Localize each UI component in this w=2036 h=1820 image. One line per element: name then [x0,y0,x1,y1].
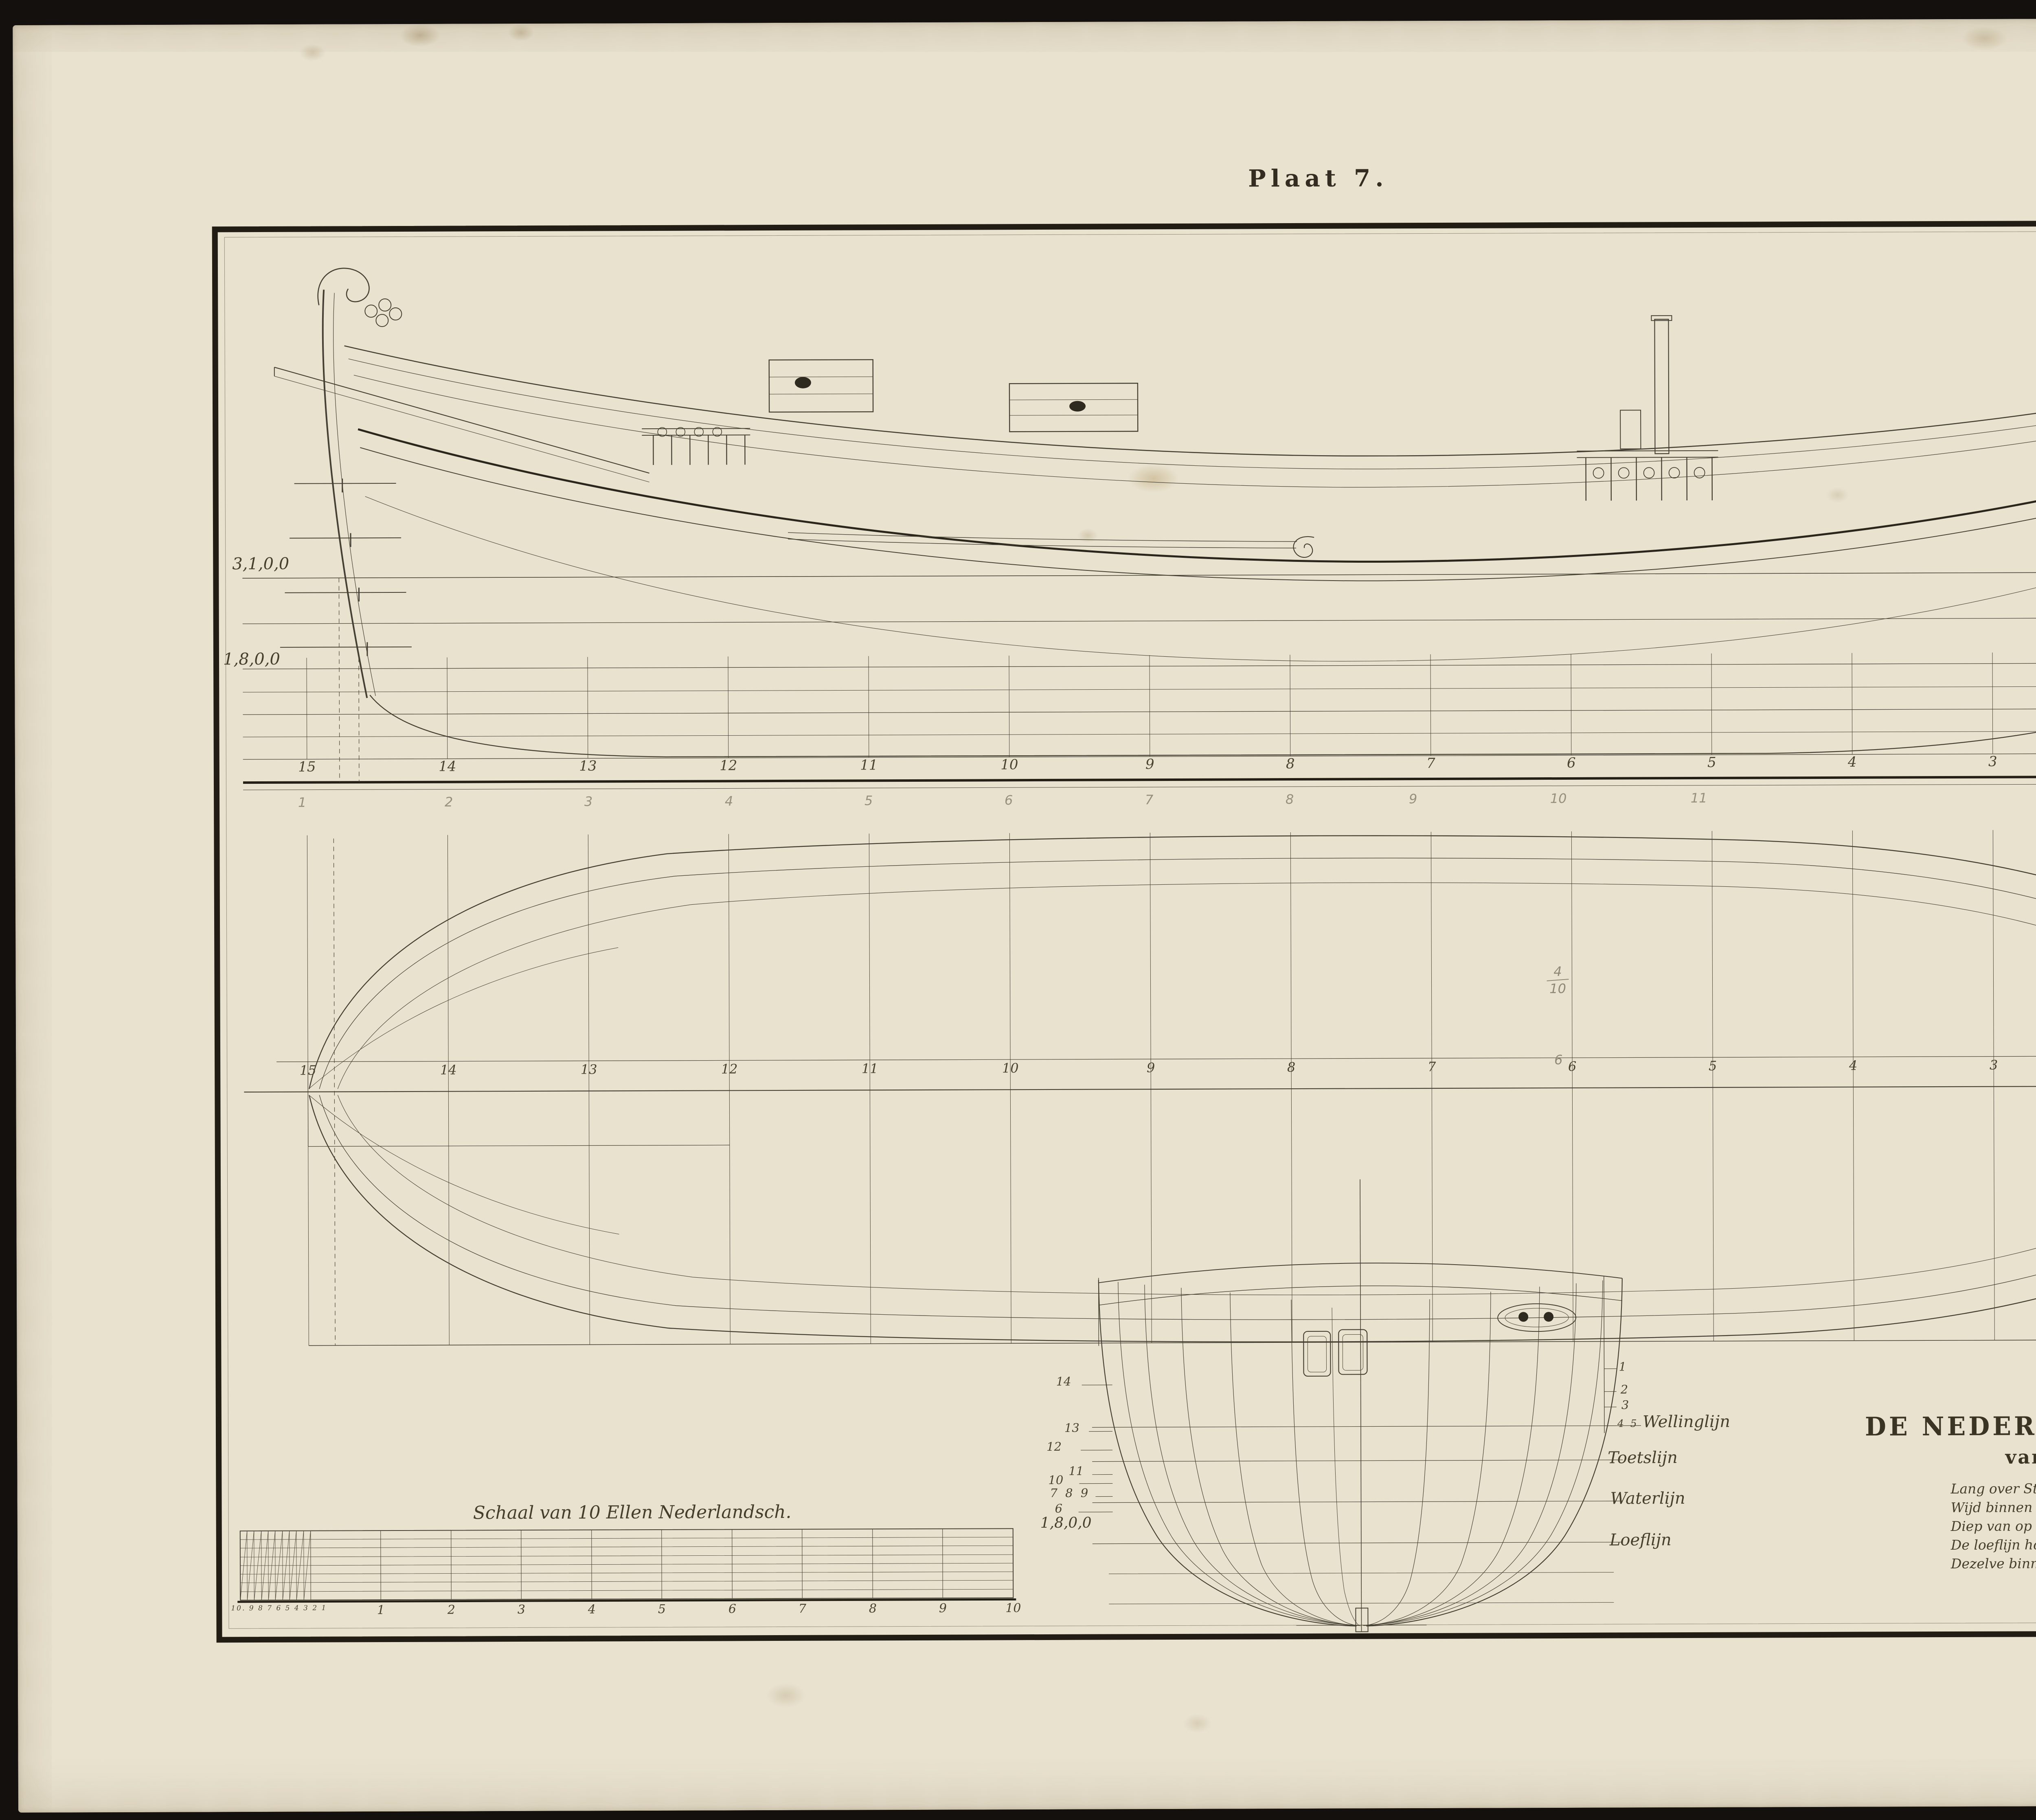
half-breadth-station-number: 15 [300,1063,316,1078]
half-breadth-station-number: 4 [1849,1058,1857,1073]
scale-major-number: 2 [448,1603,455,1617]
title-block-subtitle: van 120 Last. [1841,1445,2036,1469]
paper-sheet: Plaat 7. [13,17,2036,1813]
half-breadth-station-number: 5 [1709,1058,1717,1074]
sheer-station-number: 9 [1145,756,1154,772]
sheer-station-number: 15 [298,759,316,775]
pencil-station-number: 6 [1005,792,1013,808]
scale-major-number: 6 [728,1602,736,1616]
body-waterlijn-label: Waterlijn [1610,1489,1685,1508]
scale-major-number: 3 [518,1603,525,1617]
scale-major-number: 1 [377,1603,385,1617]
sheer-station-number: 3 [1988,754,1997,770]
sheer-station-number: 5 [1707,754,1716,771]
scale-caption: Schaal van 10 Ellen Nederlandsch. [388,1501,877,1524]
sheer-station-number: 10 [1000,757,1018,773]
half-breadth-station-number: 7 [1428,1059,1436,1074]
sheer-station-number: 14 [439,759,456,775]
body-plan-section-number: 2 [1621,1382,1628,1396]
sheer-station-number: 7 [1426,755,1435,772]
half-breadth-station-number: 6 [1568,1059,1576,1074]
scale-minor-numbers: 10. 9 8 7 6 5 4 3 2 1 [231,1604,333,1612]
scan-background: Plaat 7. [0,0,2036,1820]
sheer-height-value-upper: 3,1,0,0 [232,555,289,573]
pencil-station-number: 2 [445,794,453,810]
half-breadth-station-number: 14 [440,1062,457,1078]
scale-major-number: 4 [588,1602,596,1616]
sheer-station-number: 13 [579,758,597,774]
body-plan-section-number: 3 [1621,1398,1629,1412]
body-toetslijn-label: Toetslijn [1608,1448,1678,1467]
body-plan-height-value: 1,8,0,0 [1040,1515,1092,1531]
body-plan [1077,1178,1641,1632]
pencil-note-number: 6 [1554,1052,1562,1068]
pencil-fraction-denominator: 10 [1549,981,1566,996]
body-plan-section-number: 13 [1064,1421,1079,1435]
pencil-station-number: 8 [1286,792,1294,807]
pencil-station-number: 1 [298,795,306,810]
dimension-row: Wijd binnen de huid 7,3,00 [1951,1498,2036,1518]
pencil-fraction-numerator: 4 [1553,964,1562,979]
sheer-station-number: 11 [860,757,878,773]
body-plan-section-number: 7 8 9 [1050,1486,1090,1500]
title-block-title: DE NEDERLANDSCHE KOF. [1841,1410,2036,1442]
dimension-row: De loeflijn hoog boven de kiel 0,7,00 [1951,1536,2036,1556]
half-breadth-plan [243,829,2036,1346]
half-breadth-station-number: 10 [1002,1060,1019,1076]
scale-major-number: 9 [939,1601,947,1616]
pencil-station-number: 3 [584,794,592,809]
sheer-station-number: 6 [1567,755,1576,771]
scale-major-number: 5 [658,1602,666,1616]
pencil-station-number: 9 [1409,791,1417,807]
pencil-station-number: 5 [864,793,873,808]
dimension-row: Dezelve binnen de welling 0,2,00 [1951,1555,2036,1574]
half-breadth-station-number: 9 [1147,1060,1155,1075]
body-plan-section-number: 11 [1068,1464,1084,1478]
dimension-label: Dezelve binnen de welling [1951,1555,2036,1572]
body-plan-section-number: 1 [1619,1360,1626,1373]
body-plan-section-number: 6 [1055,1502,1063,1515]
half-breadth-station-number: 13 [581,1061,597,1077]
dimension-row: Diep van op de kiel onder het boord 3,7,… [1951,1517,2036,1537]
scale-major-number: 10 [1005,1601,1021,1615]
body-wellinglijn-label: Wellinglijn [1643,1412,1730,1432]
sheer-plan [241,261,2036,790]
body-plan-section-number: 12 [1047,1440,1062,1454]
half-breadth-station-number: 8 [1287,1059,1295,1075]
sheer-station-number: 4 [1848,754,1857,770]
dimension-table: Lang over Steven 30,000 Wijd binnen de h… [1950,1480,2036,1574]
scale-bar [237,1528,1016,1602]
half-breadth-station-number: 3 [1990,1057,1998,1073]
pencil-station-number: 4 [725,793,733,809]
pencil-station-number: 10 [1550,791,1567,806]
body-loeflijn-label: Loeflijn [1610,1531,1672,1549]
ship-lines-plan-drawing [13,17,2036,1820]
pencil-station-number: 11 [1691,790,1707,806]
sheer-station-number: 12 [720,757,737,774]
scale-major-number: 7 [799,1602,806,1616]
dimension-label: De loeflijn hoog boven de kiel [1951,1536,2036,1553]
dimension-row: Lang over Steven 30,000 [1950,1480,2036,1500]
dimension-label: Diep van op de kiel onder het boord [1951,1517,2036,1534]
body-plan-section-number: 14 [1056,1375,1071,1388]
sheer-height-value-lower: 1,8,0,0 [223,650,280,669]
sheer-station-number: 8 [1286,756,1295,772]
dimension-label: Wijd binnen de huid [1951,1499,2036,1515]
pencil-station-number: 7 [1145,792,1153,807]
half-breadth-station-number: 12 [721,1061,738,1077]
pencil-fraction: 4 10 [1543,964,1572,996]
body-plan-section-number: 10 [1048,1473,1063,1487]
half-breadth-station-number: 11 [862,1061,878,1076]
dimension-label: Lang over Steven [1950,1480,2036,1497]
body-plan-section-number: 4 5 [1617,1417,1639,1429]
scale-major-number: 8 [869,1601,877,1616]
